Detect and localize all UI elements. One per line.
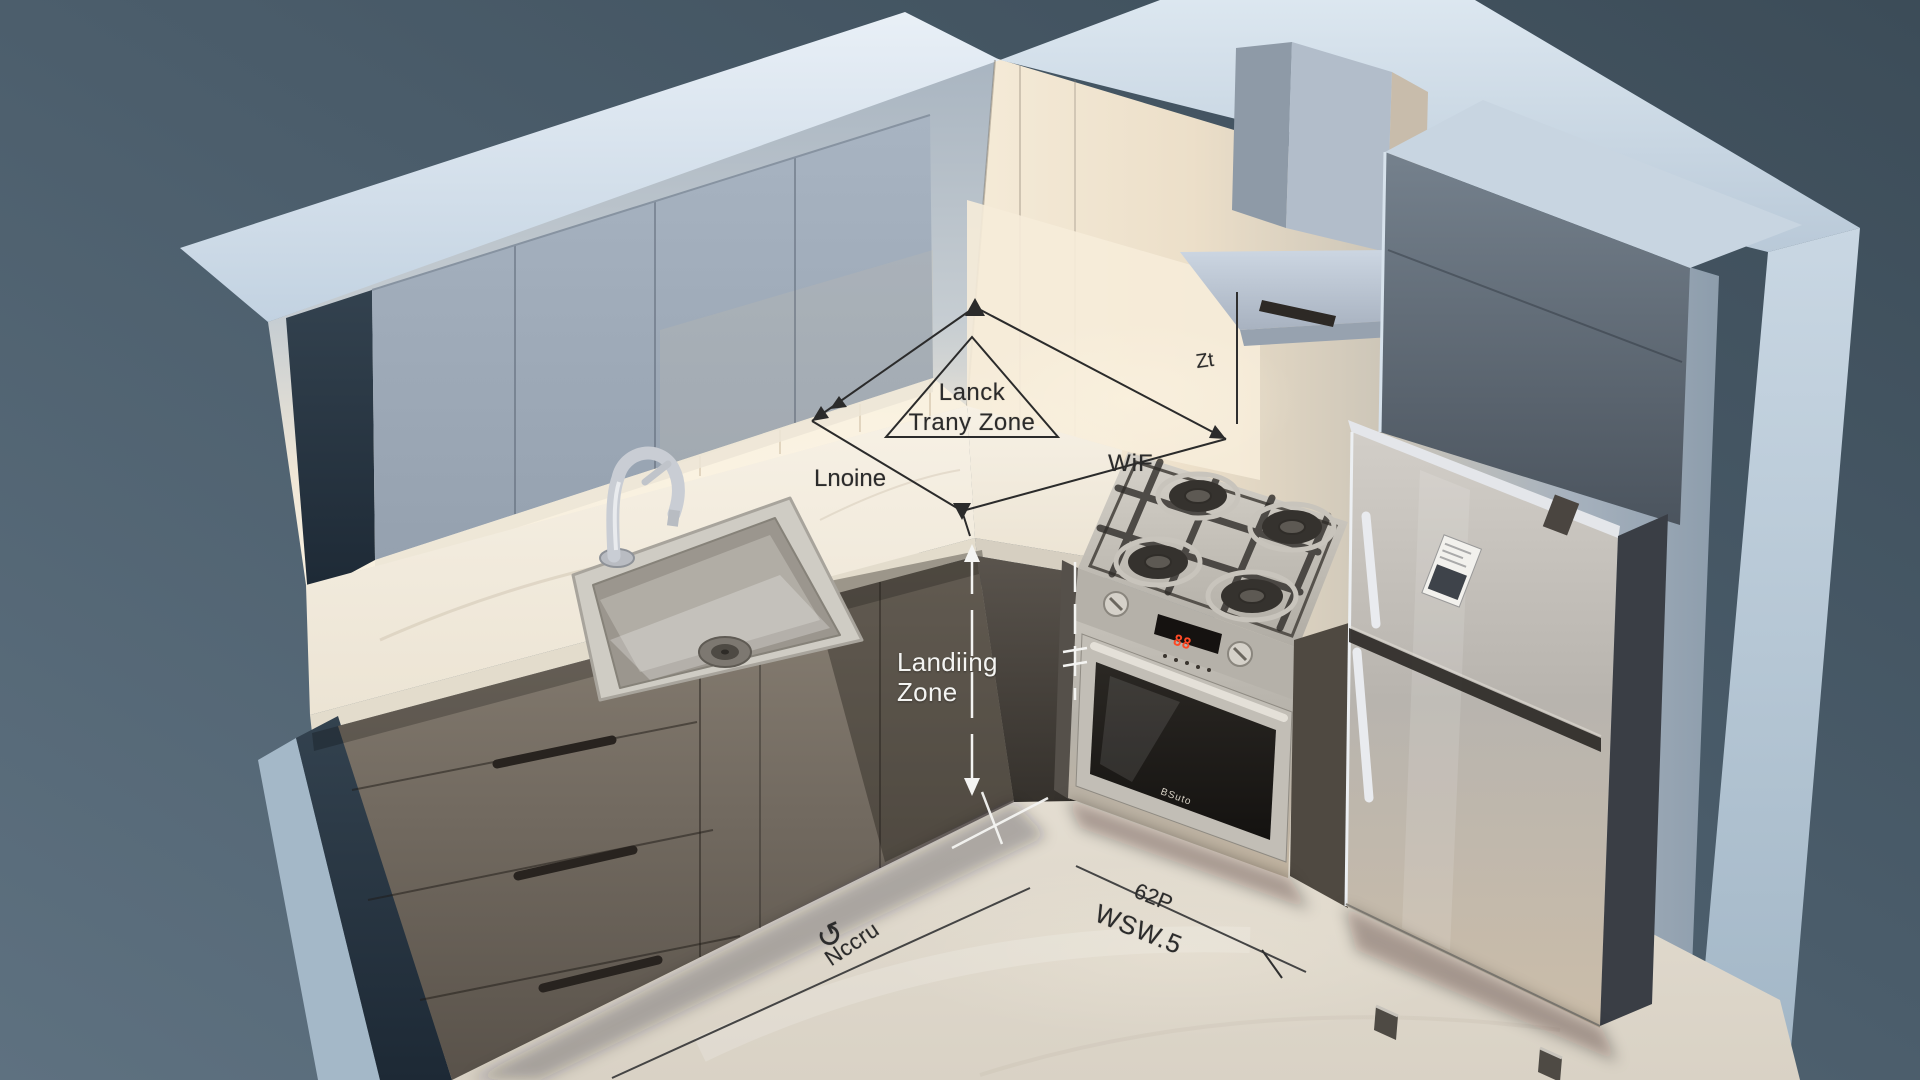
work-triangle-label-line2: Trany Zone [872, 408, 1072, 438]
backsplash-dim-label: Zt [1194, 349, 1215, 374]
hood-chimney-side [1232, 42, 1292, 228]
hood-chimney [1286, 42, 1392, 252]
landing-zone-label: Landiing Zone [897, 648, 998, 708]
kitchen-render: 88 BSuto [0, 0, 1920, 1080]
landing-zone-line1: Landiing [897, 648, 998, 678]
right-wall-side-edge [1700, 228, 1860, 1060]
counter-label-left: Lnoine [814, 465, 886, 493]
upper-cabinet-end-panel [286, 290, 375, 596]
landing-zone-line2: Zone [897, 678, 998, 708]
work-triangle-label-line1: Lanck [872, 378, 1072, 408]
counter-label-right: WiF [1108, 450, 1154, 478]
work-triangle-label: Lanck Trany Zone [872, 378, 1072, 438]
kitchen-3d-scene: 88 BSuto [0, 0, 1920, 1080]
